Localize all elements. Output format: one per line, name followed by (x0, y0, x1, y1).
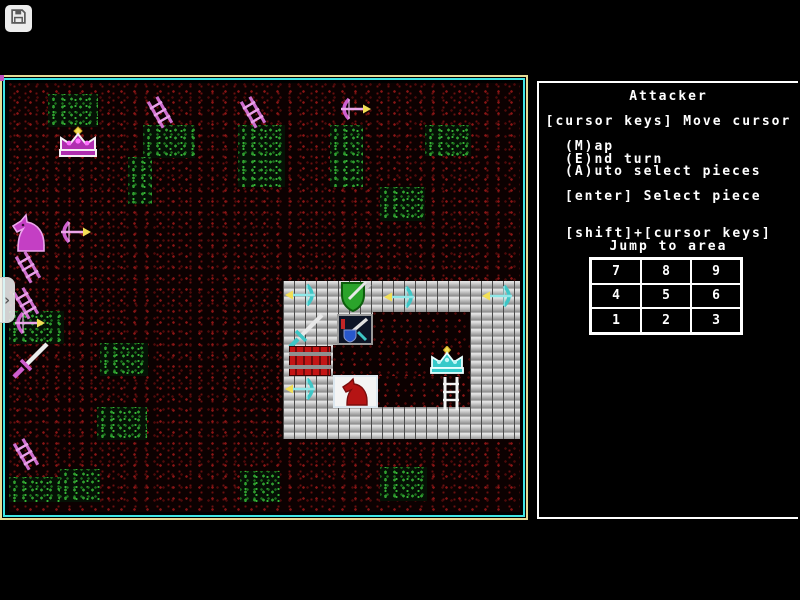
piece-crown-cyan (427, 346, 467, 380)
map-inner-frame (3, 78, 525, 517)
piece-bow-cyan (481, 283, 517, 313)
piece-ladder-white (438, 376, 464, 415)
hint-move-cursor: [cursor keys] Move cursor (539, 114, 798, 129)
panel-title: Attacker (539, 89, 798, 104)
piece-bow-cyan (383, 284, 419, 314)
piece-shield-green (336, 280, 374, 317)
attacker-info-panel: Attacker [cursor keys] Move cursor (M)ap… (537, 81, 798, 519)
grass-patch (100, 343, 148, 376)
piece-crown-magenta (55, 126, 101, 162)
border-corner-artifact (0, 75, 4, 81)
grass-patch (240, 471, 280, 502)
grass-patch (60, 469, 100, 502)
jump-cell-2: 2 (641, 308, 691, 333)
game-map-window (0, 75, 528, 520)
piece-bow-cyan (284, 282, 320, 312)
chevron-right-icon: › (2, 291, 11, 309)
piece-bow-magenta (336, 96, 372, 126)
grass-patch (425, 125, 471, 156)
jump-cell-8: 8 (641, 259, 691, 284)
grass-patch (380, 187, 425, 221)
piece-bow-magenta (10, 310, 46, 340)
piece-bow-magenta (56, 219, 92, 249)
jump-cell-4: 4 (591, 284, 641, 309)
grass-patch (380, 467, 427, 501)
jump-cell-3: 3 (691, 308, 741, 333)
jump-cell-5: 5 (641, 284, 691, 309)
piece-defender-emblem (337, 314, 373, 345)
grass-patch (330, 125, 363, 187)
jump-cell-1: 1 (591, 308, 641, 333)
save-button[interactable] (5, 5, 32, 32)
grass-patch (48, 94, 98, 127)
castle-courtyard (373, 312, 470, 345)
jump-cell-6: 6 (691, 284, 741, 309)
hint-select-piece: [enter] Select piece (539, 189, 798, 204)
piece-sword-magenta (9, 340, 51, 384)
cursor-tile-knight-red[interactable] (333, 375, 378, 408)
floppy-disk-icon (10, 8, 27, 29)
grass-patch (9, 477, 60, 502)
grass-patch (238, 125, 285, 187)
battle-map[interactable] (9, 83, 520, 512)
hint-jump-to-area: Jump to area (539, 239, 798, 254)
piece-ladder-magenta (9, 434, 46, 478)
grass-patch (128, 157, 152, 204)
hint-auto-select-key: (A)uto select pieces (539, 164, 798, 179)
jump-area-grid: 7 8 9 4 5 6 1 2 3 (589, 257, 743, 335)
piece-bow-cyan (284, 376, 320, 406)
grass-patch (97, 407, 147, 440)
jump-cell-7: 7 (591, 259, 641, 284)
jump-cell-9: 9 (691, 259, 741, 284)
sidebar-toggle-button[interactable]: › (0, 277, 15, 323)
piece-crate-red (289, 346, 331, 376)
